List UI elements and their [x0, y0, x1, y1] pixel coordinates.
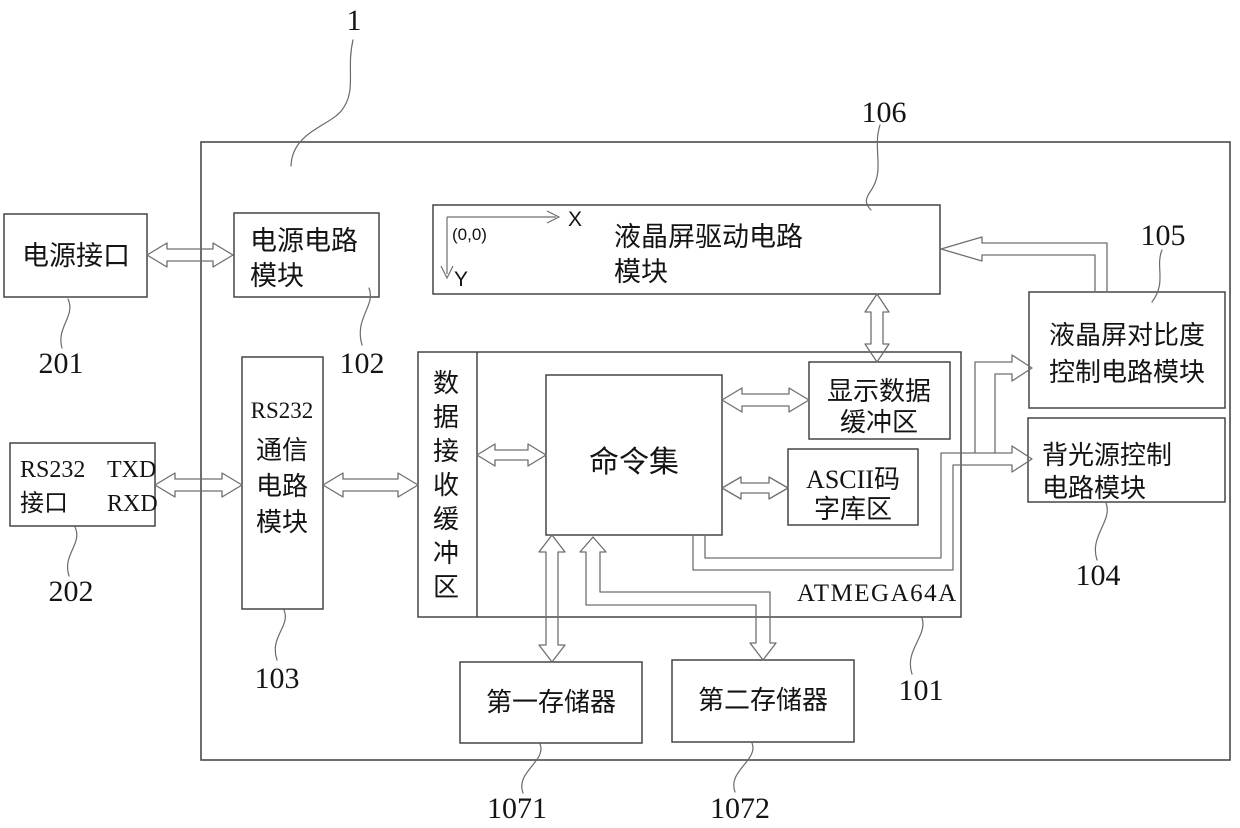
data-rx-buffer-char4: 收 [433, 471, 459, 500]
arrow-branch-to-contrast [975, 355, 1032, 453]
mcu-chip-label: ATMEGA64A [797, 580, 958, 607]
leader-power-interface [61, 299, 70, 348]
leader-memory2 [734, 743, 753, 792]
leader-lcd-driver [866, 125, 880, 210]
display-buffer-label-line1: 显示数据 [827, 377, 931, 406]
x-axis-label: X [568, 208, 582, 231]
leader-memory1 [522, 744, 541, 793]
data-rx-buffer-char6: 冲 [433, 539, 459, 568]
leader-backlight [1095, 503, 1107, 560]
display-buffer-label-line2: 缓冲区 [840, 408, 918, 437]
arrow-rs232-interface-rs232-comm [155, 473, 242, 497]
ascii-font-label-line2: 字库区 [814, 495, 892, 524]
rs232-interface-label-line2-right: RXD [107, 491, 158, 517]
arrow-rs232-comm-data-rx-buffer [323, 473, 418, 497]
lcd-driver-label-line2: 模块 [614, 257, 668, 287]
lcd-origin-label: (0,0) [452, 225, 487, 244]
power-circuit-label-line2: 模块 [250, 261, 304, 291]
ref-backlight: 104 [1076, 559, 1121, 592]
arrow-contrast-to-lcd-driver [941, 237, 1107, 292]
lcd-driver-label-line1: 液晶屏驱动电路 [614, 222, 803, 252]
ref-system: 1 [347, 4, 362, 37]
contrast-box [1029, 292, 1225, 408]
leader-system [291, 40, 353, 166]
memory2-label: 第二存储器 [698, 686, 828, 715]
ref-rs232-interface: 202 [49, 575, 94, 608]
leader-rs232-comm [275, 610, 285, 660]
memory1-label: 第一存储器 [486, 688, 616, 717]
arrow-power-interface-power-circuit [147, 243, 233, 267]
leader-rs232-interface [68, 527, 77, 576]
rs232-comm-label-line2: 通信 [256, 436, 308, 465]
contrast-label-line2: 控制电路模块 [1049, 358, 1205, 387]
data-rx-buffer-char2: 据 [433, 403, 459, 432]
contrast-label-line1: 液晶屏对比度 [1049, 321, 1205, 350]
y-axis-label: Y [454, 268, 468, 291]
rs232-comm-label-line1: RS232 [251, 398, 314, 423]
backlight-label-line2: 电路模块 [1042, 474, 1146, 503]
ref-power-circuit: 102 [340, 347, 385, 380]
block-diagram: 1 106 105 201 102 202 103 101 104 1071 1… [0, 0, 1240, 828]
leader-mcu [910, 618, 923, 674]
rs232-comm-label-line3: 电路 [256, 472, 308, 501]
rs232-interface-label-line1-left: RS232 [20, 457, 85, 483]
ref-mcu: 101 [899, 674, 944, 707]
data-rx-buffer-char5: 缓 [433, 505, 459, 534]
data-rx-buffer-char1: 数 [433, 369, 459, 398]
patent-figure-canvas: 1 106 105 201 102 202 103 101 104 1071 1… [0, 0, 1240, 828]
data-rx-buffer-char3: 接 [433, 437, 459, 466]
ref-power-interface: 201 [39, 347, 84, 380]
rs232-interface-label-line1-right: TXD [107, 457, 156, 483]
power-interface-label: 电源接口 [22, 241, 130, 271]
ref-memory2: 1072 [710, 792, 770, 825]
data-rx-buffer-char7: 区 [433, 573, 459, 602]
power-circuit-label-line1: 电源电路 [250, 226, 358, 256]
ref-contrast: 105 [1141, 219, 1186, 252]
command-set-label: 命令集 [589, 446, 679, 479]
ref-memory1: 1071 [487, 792, 547, 825]
ref-rs232-comm: 103 [255, 662, 300, 695]
ref-lcd-driver: 106 [862, 96, 907, 129]
ascii-font-label-line1: ASCII码 [806, 465, 900, 494]
backlight-label-line1: 背光源控制 [1042, 441, 1172, 470]
rs232-comm-label-line4: 模块 [256, 508, 308, 537]
rs232-interface-label-line2-left: 接口 [20, 490, 68, 517]
